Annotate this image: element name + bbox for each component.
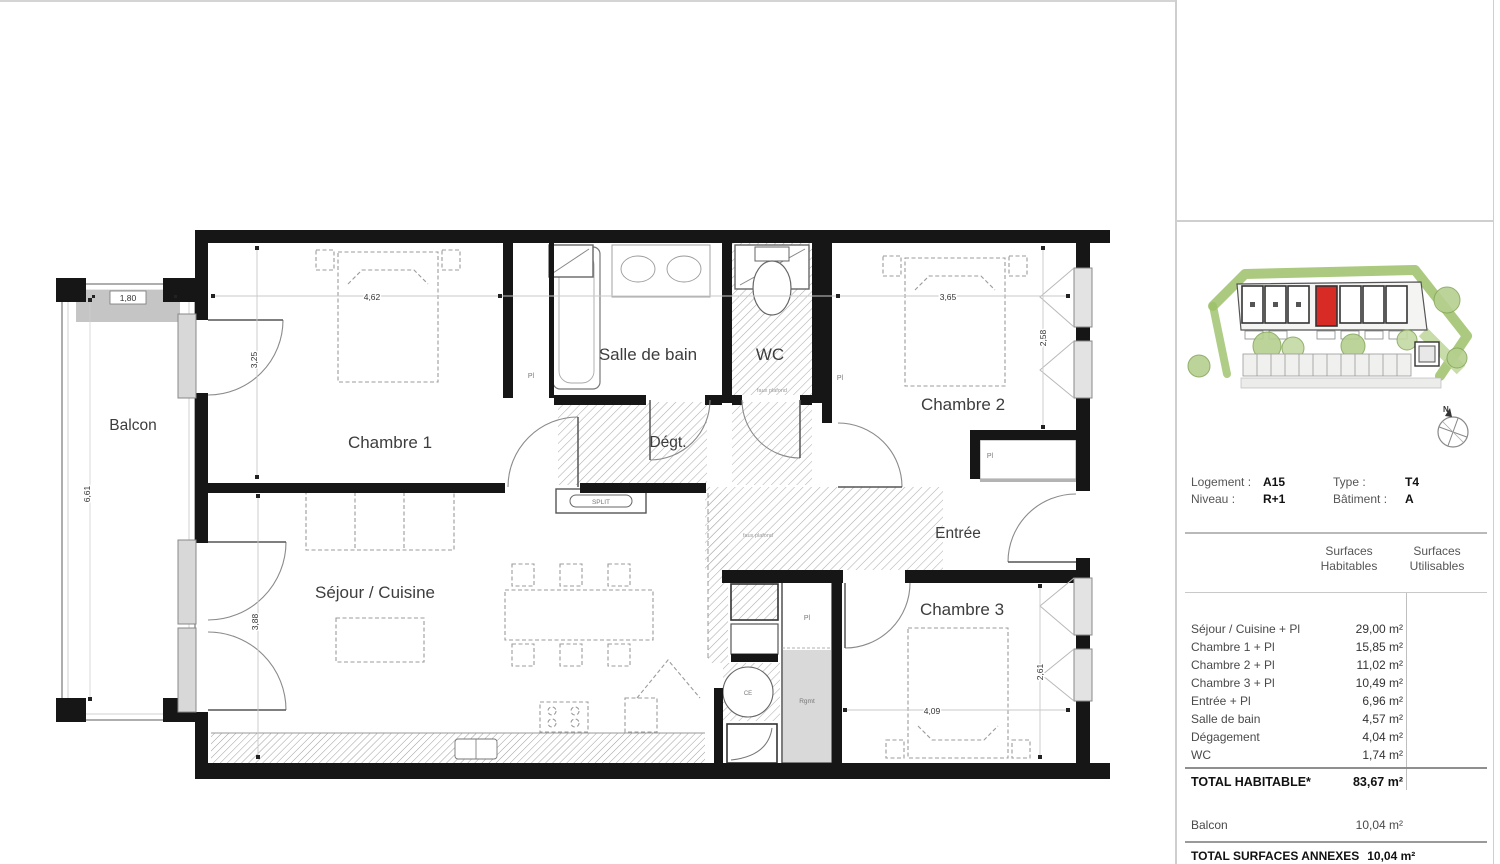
niveau-value: R+1 [1263, 491, 1333, 508]
surface-row: Entrée + Pl 6,96 m² [1191, 692, 1403, 710]
dim-chambre2-width: 3,65 [940, 292, 957, 302]
room-label-sejour: Séjour / Cuisine [315, 583, 435, 602]
walls [195, 230, 1110, 779]
surface-row: Salle de bain 4,57 m² [1191, 710, 1403, 728]
sidebar-right-border [1493, 0, 1494, 864]
sink-left [621, 256, 655, 282]
note-faux-plafond-wc: faux plafond [757, 388, 787, 394]
logo-box [1177, 2, 1493, 222]
total-annexes-value: 10,04 m² [1367, 849, 1415, 863]
closet-label-chambre1: Pl [528, 373, 535, 380]
hood [637, 660, 700, 698]
divider [1185, 592, 1487, 593]
closet-label-entree: Pl [987, 453, 994, 460]
cooktop [540, 702, 588, 732]
window-chambre3-b [1074, 649, 1092, 701]
total-habitable-label: TOTAL HABITABLE* [1191, 775, 1331, 789]
compass-north-label: N [1443, 405, 1449, 414]
floor-plan: Balcon Chambre 1 Salle de bain WC Chambr… [0, 0, 1175, 864]
room-label-degt: Dégt. [649, 434, 686, 451]
surface-row: Chambre 3 + Pl 10,49 m² [1191, 674, 1403, 692]
window-chambre2-a [1074, 268, 1092, 327]
rangement-label: Rgmt [799, 698, 815, 705]
room-label-entree: Entrée [935, 525, 981, 542]
toilet [753, 261, 791, 315]
surface-row: Chambre 2 + Pl 11,02 m² [1191, 656, 1403, 674]
dim-balcon-width: 1,80 [120, 293, 137, 303]
balcony-door-chambre1 [178, 314, 196, 398]
dim-sejour-height: 3,88 [250, 613, 260, 630]
dining-table [505, 590, 653, 640]
unit-info: Logement : A15 Type : T4 Niveau : R+1 Bâ… [1191, 474, 1481, 508]
closet-entree [980, 440, 1076, 479]
surface-row: Chambre 1 + Pl 15,85 m² [1191, 638, 1403, 656]
room-label-chambre1: Chambre 1 [348, 433, 432, 452]
batiment-label: Bâtiment : [1333, 491, 1405, 508]
dim-chambre3-width: 4,09 [924, 706, 941, 716]
logement-label: Logement : [1191, 474, 1263, 491]
site-plan: N [1185, 236, 1485, 466]
room-label-chambre3: Chambre 3 [920, 600, 1004, 619]
dim-chambre2-height: 2,58 [1038, 329, 1048, 346]
total-habitable-row: TOTAL HABITABLE* 83,67 m² [1191, 775, 1403, 789]
total-habitable-value: 83,67 m² [1331, 775, 1403, 789]
column-divider [1406, 593, 1407, 790]
trap-box [727, 724, 777, 763]
note-faux-plafond-entree: faux plafond [743, 533, 773, 539]
dim-chambre1-height: 3,25 [249, 351, 259, 368]
water-heater-label: CE [744, 691, 752, 697]
dim-chambre1-width: 4,62 [364, 292, 381, 302]
sidebar: N Logement : A15 Type : T4 Niveau : R+1 … [1175, 0, 1500, 864]
balcon-annex-value: 10,04 m² [1333, 818, 1403, 832]
room-label-salle-de-bain: Salle de bain [599, 345, 697, 364]
surface-row: WC 1,74 m² [1191, 746, 1403, 764]
room-label-wc: WC [756, 345, 784, 364]
split-label: SPLIT [592, 499, 610, 506]
logement-value: A15 [1263, 474, 1333, 491]
surfaces-header: Surfaces Habitables Surfaces Utilisables [1191, 544, 1481, 574]
batiment-value: A [1405, 491, 1481, 508]
col-utilisables-header: Surfaces Utilisables [1393, 544, 1481, 574]
bed-chambre2 [905, 258, 1005, 386]
col-habitables-header: Surfaces Habitables [1305, 544, 1393, 574]
balcon-annex-label: Balcon [1191, 818, 1333, 832]
bed-chambre3 [908, 628, 1008, 758]
type-label: Type : [1333, 474, 1405, 491]
window-chambre3-a [1074, 578, 1092, 635]
dim-balcon-height: 6,61 [82, 485, 92, 502]
surfaces-table: Séjour / Cuisine + Pl 29,00 m² Chambre 1… [1191, 620, 1403, 764]
closet-label-chambre2: Pl [837, 375, 844, 382]
bed-chambre1 [338, 252, 438, 382]
closet-label-rangement: Pl [804, 615, 811, 622]
divider [1185, 767, 1487, 769]
room-label-chambre2: Chambre 2 [921, 395, 1005, 414]
room-label-balcon: Balcon [109, 417, 156, 434]
coffee-table [336, 618, 424, 662]
page: Balcon Chambre 1 Salle de bain WC Chambr… [0, 0, 1500, 864]
surface-row: Séjour / Cuisine + Pl 29,00 m² [1191, 620, 1403, 638]
balcony-door-sejour-b [178, 628, 196, 712]
dim-chambre3-height: 2,61 [1035, 663, 1045, 680]
balcony-door-sejour-a [178, 540, 196, 624]
divider [1185, 532, 1487, 534]
total-annexes-row: TOTAL SURFACES ANNEXES 10,04 m² [1191, 849, 1481, 863]
balcon-annex-row: Balcon 10,04 m² [1191, 818, 1403, 832]
surface-row: Dégagement 4,04 m² [1191, 728, 1403, 746]
tech-box2 [731, 624, 778, 654]
fridge [625, 698, 657, 732]
compass: N [1438, 405, 1468, 447]
sink-right [667, 256, 701, 282]
sofa [306, 492, 454, 550]
balcony [56, 278, 195, 722]
site-plan-building [1237, 282, 1441, 388]
niveau-label: Niveau : [1191, 491, 1263, 508]
highlighted-unit [1316, 286, 1337, 326]
window-chambre2-b [1074, 341, 1092, 398]
toilet-tank [755, 247, 789, 261]
divider [1185, 841, 1487, 843]
type-value: T4 [1405, 474, 1481, 491]
total-annexes-label: TOTAL SURFACES ANNEXES [1191, 849, 1359, 863]
